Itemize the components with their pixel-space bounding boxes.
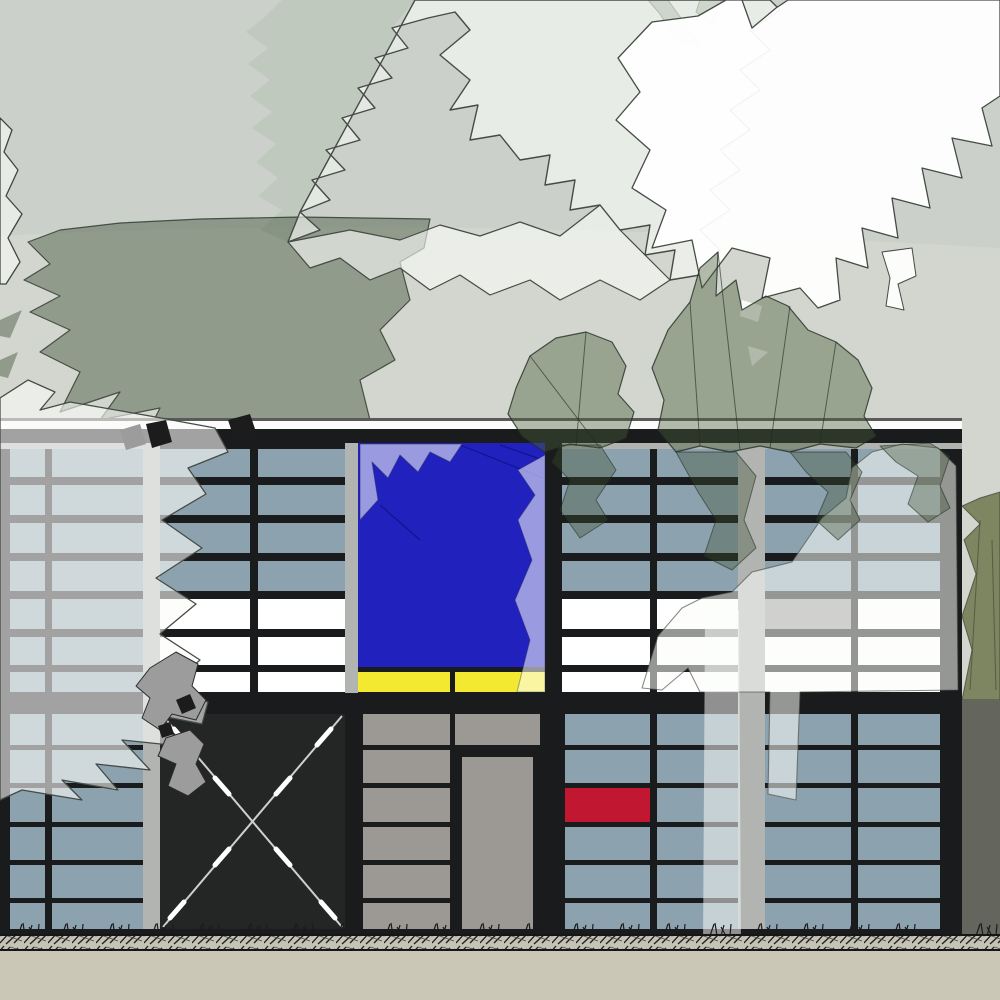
window-pane — [10, 827, 45, 860]
window-pane — [565, 827, 650, 860]
window-pane — [858, 714, 940, 745]
window-pane — [858, 750, 940, 783]
pilaster — [345, 443, 358, 693]
tall-gray-door — [462, 757, 533, 929]
slat-panel — [363, 827, 450, 860]
ground — [0, 923, 1000, 1000]
window-pane — [258, 523, 345, 553]
window-pane — [10, 865, 45, 898]
window-pane — [258, 449, 345, 477]
white-panel — [562, 637, 650, 665]
window-pane — [765, 827, 851, 860]
window-pane — [858, 788, 940, 822]
white-panel — [258, 672, 345, 692]
tree-trunk — [703, 610, 741, 950]
window-pane — [565, 865, 650, 898]
window-pane — [765, 865, 851, 898]
white-panel — [258, 599, 345, 629]
window-pane — [52, 827, 143, 860]
window-pane — [562, 561, 650, 591]
window-pane — [258, 485, 345, 515]
hedge-shadow — [962, 700, 1000, 937]
yellow-panel-left — [358, 672, 450, 692]
red-panel-inset — [568, 790, 648, 820]
window-pane — [765, 903, 851, 929]
window-pane — [10, 903, 45, 929]
window-pane — [258, 561, 345, 591]
door-head-panel — [455, 714, 540, 745]
white-panel — [562, 599, 650, 629]
elevation-svg — [0, 0, 1000, 1000]
slat-panel — [363, 865, 450, 898]
hatch-band — [0, 936, 1000, 951]
window-pane — [858, 865, 940, 898]
window-pane — [565, 750, 650, 783]
window-pane — [565, 714, 650, 745]
slat-panel — [363, 788, 450, 822]
elevation-drawing — [0, 0, 1000, 1000]
window-pane — [858, 827, 940, 860]
slat-panel — [363, 714, 450, 745]
slat-panel — [363, 750, 450, 783]
soil — [0, 951, 1000, 1000]
window-pane — [52, 865, 143, 898]
white-panel — [562, 672, 650, 692]
white-panel — [258, 637, 345, 665]
